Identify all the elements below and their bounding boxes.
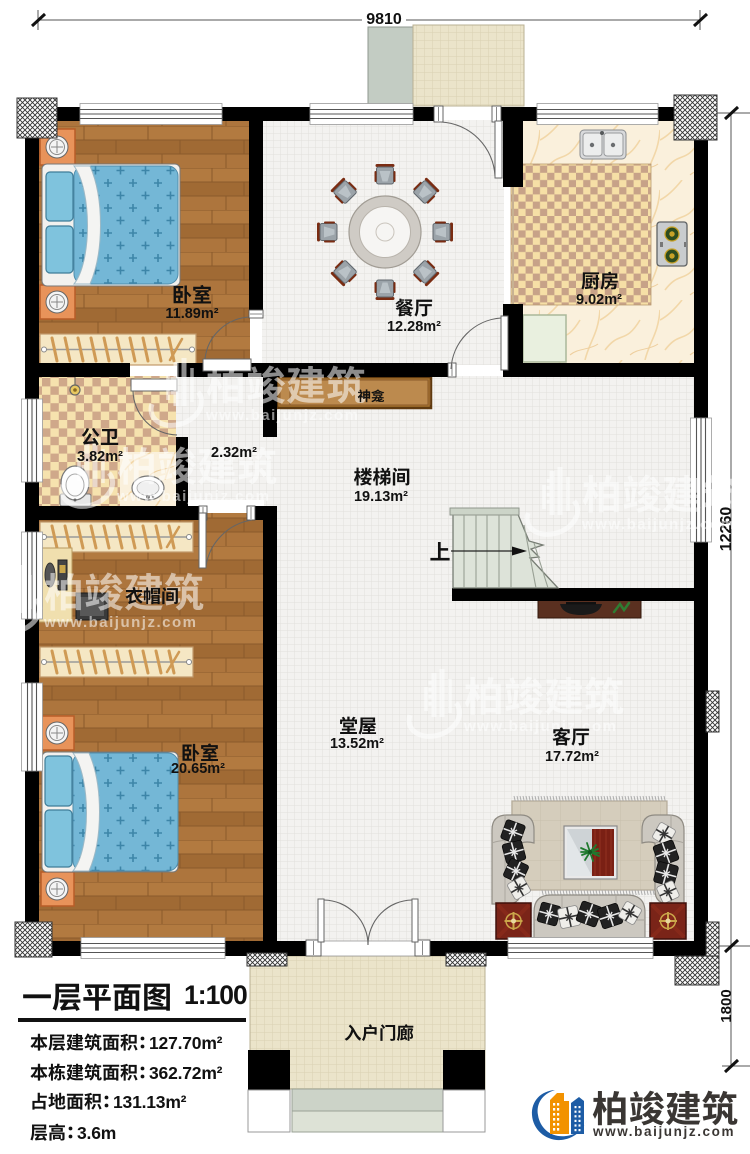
svg-text:131.13m²: 131.13m² bbox=[113, 1092, 187, 1112]
svg-text:9.02m²: 9.02m² bbox=[576, 292, 622, 308]
svg-text:www.baijunjz.com: www.baijunjz.com bbox=[463, 718, 617, 735]
svg-text:362.72m²: 362.72m² bbox=[149, 1063, 223, 1083]
svg-text:9810: 9810 bbox=[366, 11, 402, 28]
svg-text:3.82m²: 3.82m² bbox=[77, 449, 123, 465]
svg-text:www.baijunjz.com: www.baijunjz.com bbox=[581, 516, 735, 533]
svg-text:2.32m²: 2.32m² bbox=[211, 445, 257, 461]
svg-text:1800: 1800 bbox=[718, 989, 735, 1022]
svg-text:11.89m²: 11.89m² bbox=[165, 306, 218, 322]
svg-text:20.65m²: 20.65m² bbox=[171, 761, 225, 777]
svg-text:www.baijunjz.com: www.baijunjz.com bbox=[592, 1124, 735, 1139]
svg-text:1:100: 1:100 bbox=[184, 980, 247, 1010]
svg-text:www.baijunjz.com: www.baijunjz.com bbox=[205, 407, 359, 424]
svg-text:www.baijunjz.com: www.baijunjz.com bbox=[43, 614, 197, 631]
svg-text:17.72m²: 17.72m² bbox=[545, 749, 599, 765]
svg-text:3.6m: 3.6m bbox=[77, 1123, 116, 1143]
svg-text:12.28m²: 12.28m² bbox=[387, 319, 441, 335]
svg-text:127.70m²: 127.70m² bbox=[149, 1033, 223, 1053]
svg-text:www.baijunjz.com: www.baijunjz.com bbox=[116, 488, 270, 505]
svg-text:13.52m²: 13.52m² bbox=[330, 736, 384, 752]
svg-text:19.13m²: 19.13m² bbox=[354, 489, 408, 505]
